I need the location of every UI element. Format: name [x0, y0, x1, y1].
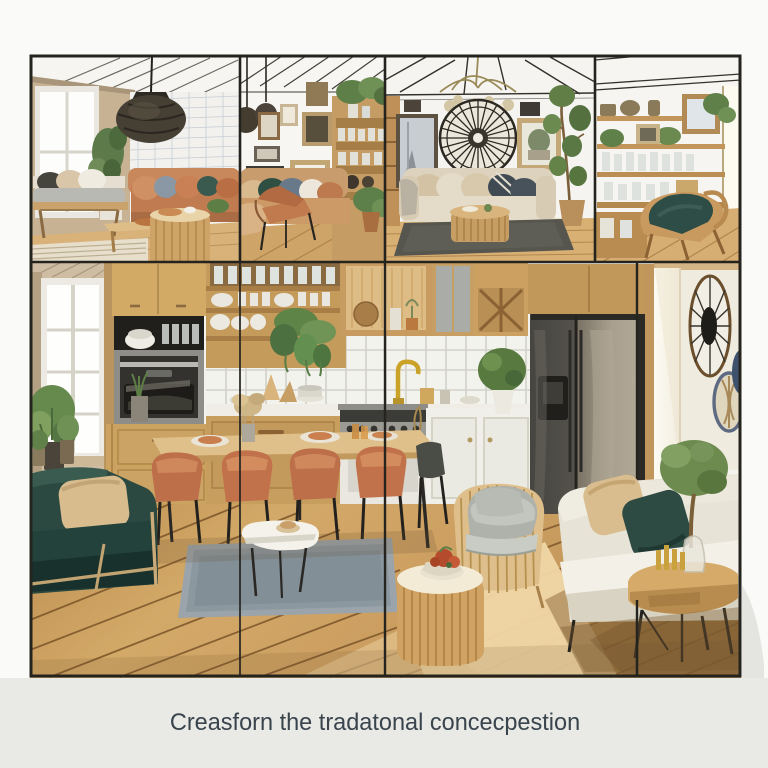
svg-text:Creasforn the tradatonal conce: Creasforn the tradatonal concecpestion: [170, 709, 580, 737]
